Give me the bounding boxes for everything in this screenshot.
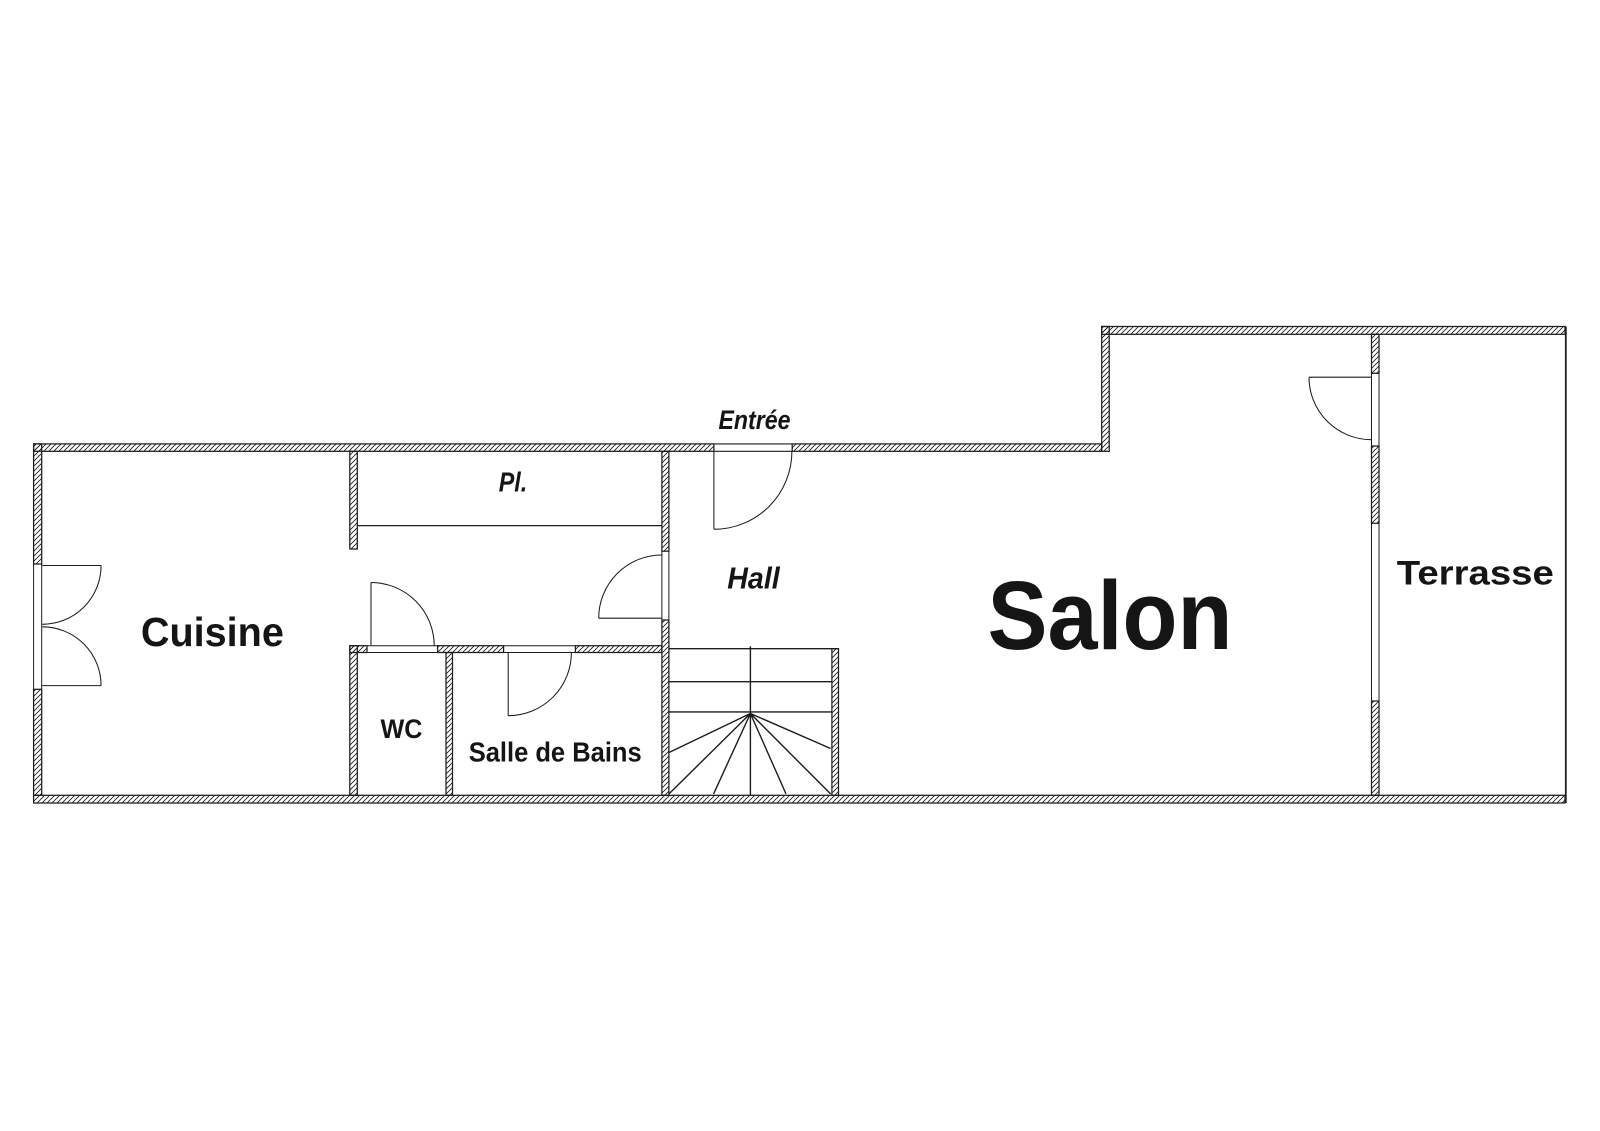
svg-text:Hall: Hall <box>727 562 781 596</box>
svg-text:Entrée: Entrée <box>719 404 791 435</box>
svg-text:Salon: Salon <box>988 560 1233 670</box>
svg-text:Terrasse: Terrasse <box>1397 555 1554 593</box>
svg-text:WC: WC <box>381 714 423 744</box>
svg-text:Cuisine: Cuisine <box>141 609 284 655</box>
svg-text:Pl.: Pl. <box>499 466 528 498</box>
svg-text:Salle de Bains: Salle de Bains <box>469 737 642 768</box>
